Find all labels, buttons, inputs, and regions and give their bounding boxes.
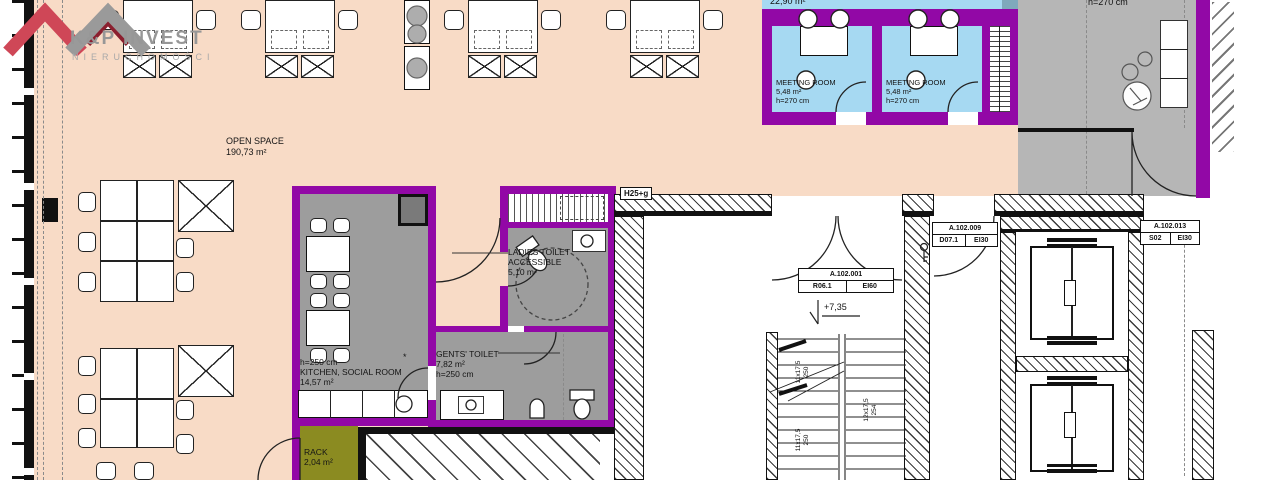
elevator-door bbox=[1047, 244, 1097, 247]
room-area: 22,90 m² bbox=[770, 0, 834, 6]
chair bbox=[96, 462, 116, 480]
chair bbox=[176, 400, 194, 420]
elevator-door bbox=[1047, 469, 1097, 473]
meeting-wall bbox=[872, 26, 882, 112]
facade-tick-marks bbox=[12, 0, 24, 480]
shaft-wall bbox=[1000, 232, 1016, 480]
core-wall bbox=[614, 216, 644, 480]
door-fire-rating: EI60 bbox=[846, 281, 894, 292]
meeting-table bbox=[910, 26, 958, 56]
chair bbox=[176, 238, 194, 258]
toilet-wall bbox=[500, 186, 616, 194]
gents-toilet-label: GENTS' TOILET 7,82 m² h=250 cm bbox=[436, 349, 499, 379]
axis-dashed-line bbox=[37, 0, 38, 480]
storage-cabinet bbox=[504, 55, 537, 78]
chair bbox=[78, 232, 96, 252]
meeting-table bbox=[800, 26, 848, 56]
room-above-area-label: 22,90 m² bbox=[770, 0, 834, 9]
cabinet-shelf bbox=[1160, 49, 1188, 50]
room-area: 14,57 m² bbox=[300, 377, 402, 387]
room-name: GENTS' TOILET bbox=[436, 349, 499, 359]
elevator-guide bbox=[1064, 280, 1076, 306]
storage-cabinet bbox=[301, 55, 334, 78]
chair bbox=[78, 192, 96, 212]
axis-dashed-line bbox=[1086, 0, 1087, 194]
axis-dashed-line bbox=[1184, 220, 1185, 476]
shelf-divider bbox=[999, 26, 1000, 112]
desk bbox=[271, 30, 297, 49]
partition-dashed-line bbox=[563, 334, 564, 420]
wall-column bbox=[42, 198, 58, 222]
chair bbox=[78, 428, 96, 448]
hall-partition-wall bbox=[1018, 128, 1134, 132]
chair bbox=[541, 10, 561, 30]
kitchen-label: h=250 cm KITCHEN, SOCIAL ROOM 14,57 m² bbox=[300, 357, 402, 387]
storage-cabinet bbox=[630, 55, 663, 78]
meeting-wall bbox=[762, 9, 1020, 26]
room-area: 190,73 m² bbox=[226, 147, 284, 158]
open-space-floor-3 bbox=[762, 125, 1018, 196]
chair bbox=[444, 10, 464, 30]
stair-wall bbox=[766, 332, 778, 480]
door-code-lobby: A.102.009 D07.1 EI30 bbox=[932, 222, 998, 247]
counter-divider bbox=[362, 390, 363, 418]
counter-divider bbox=[394, 390, 395, 418]
shaft-wall bbox=[1000, 216, 1144, 232]
ladies-toilet-label: LADIES TOILET ACCESSIBLE 5,10 m² bbox=[508, 247, 570, 277]
table-divider bbox=[100, 398, 174, 400]
room-height: h=270 cm bbox=[886, 97, 946, 106]
asterisk-mark: * bbox=[403, 352, 407, 363]
chair bbox=[99, 10, 119, 30]
room-qualifier: ACCESSIBLE bbox=[508, 257, 570, 267]
door-fire-rating: EI30 bbox=[965, 235, 998, 246]
open-space-label: OPEN SPACE 190,73 m² bbox=[226, 136, 284, 157]
table-divider bbox=[100, 220, 174, 222]
elevator-guide bbox=[1064, 412, 1076, 438]
door-code: A.102.009 bbox=[933, 223, 997, 235]
lobby-floor bbox=[930, 216, 1000, 480]
elevator-door bbox=[1047, 238, 1097, 242]
door-code-shaft: A.102.013 S02 EI30 bbox=[1140, 220, 1200, 245]
kitchen-wall bbox=[292, 186, 436, 194]
door-code: A.102.013 bbox=[1141, 221, 1199, 233]
facade-wall bbox=[24, 0, 34, 480]
chair bbox=[176, 272, 194, 292]
axis-dashed-line bbox=[62, 0, 63, 480]
elevator-door bbox=[1047, 382, 1097, 385]
chair bbox=[606, 10, 626, 30]
axis-dashed-line bbox=[43, 0, 44, 480]
storage-cabinet bbox=[265, 55, 298, 78]
locker-dashed-unit bbox=[560, 196, 604, 220]
storage-cabinet bbox=[178, 345, 234, 397]
meeting-wall bbox=[762, 112, 1020, 125]
kitchen-wall bbox=[292, 418, 436, 426]
logo-subtitle: NIERUCHOMOŚCI bbox=[72, 52, 215, 62]
gents-door-opening bbox=[508, 326, 524, 332]
door-ref: D07.1 bbox=[933, 235, 965, 246]
desk bbox=[303, 30, 329, 49]
level-value: +7,35 bbox=[824, 302, 847, 313]
room-name: KITCHEN, SOCIAL ROOM bbox=[300, 367, 402, 377]
sink bbox=[458, 396, 484, 414]
hall-cabinet bbox=[1160, 20, 1188, 108]
room-name: RACK bbox=[304, 447, 333, 457]
rack-label: RACK 2,04 m² bbox=[304, 447, 333, 467]
door-fire-rating: EI30 bbox=[1170, 233, 1200, 244]
kitchen-table bbox=[306, 236, 350, 272]
kitchen-table bbox=[306, 310, 350, 346]
void-hatch bbox=[366, 434, 600, 480]
chair bbox=[703, 10, 723, 30]
lintel-label: H25+g bbox=[620, 187, 652, 200]
cabinet-shelf bbox=[1160, 78, 1188, 79]
planter-box bbox=[404, 46, 430, 90]
meeting-door-opening bbox=[836, 112, 866, 125]
door-ref: S02 bbox=[1141, 233, 1170, 244]
chair bbox=[176, 434, 194, 454]
desk bbox=[668, 30, 694, 49]
chair bbox=[241, 10, 261, 30]
ladies-door-opening bbox=[500, 252, 508, 286]
chair bbox=[78, 394, 96, 414]
room-name: LADIES TOILET bbox=[508, 247, 570, 257]
chair bbox=[333, 274, 350, 289]
elevator-door bbox=[1047, 341, 1097, 345]
toilet-wall bbox=[508, 222, 608, 228]
table-divider bbox=[136, 180, 138, 302]
room-name: OPEN SPACE bbox=[226, 136, 284, 147]
core-wall bbox=[994, 194, 1144, 216]
kitchen-counter bbox=[298, 390, 428, 418]
room-area: 2,04 m² bbox=[304, 457, 333, 467]
chair bbox=[78, 272, 96, 292]
floor-plan-canvas: H25+g A.102.001 R06.1 EI60 A.102.009 D07… bbox=[0, 0, 1280, 480]
shaft-wall bbox=[1128, 232, 1144, 480]
meeting-room-2-label: MEETING ROOM 5,48 m² h=270 cm bbox=[886, 79, 946, 106]
lintel-text: H25+g bbox=[624, 189, 648, 198]
kitchen-door-opening bbox=[428, 366, 436, 400]
meeting-wall bbox=[982, 26, 990, 112]
elevator-door bbox=[1047, 336, 1097, 339]
chair bbox=[310, 274, 327, 289]
rack-wall bbox=[292, 426, 300, 480]
elevator-door bbox=[1047, 376, 1097, 380]
logo-title: K&P INVEST bbox=[70, 28, 204, 50]
door-ref: R06.1 bbox=[799, 281, 846, 292]
room-area: 7,82 m² bbox=[436, 359, 499, 369]
chair bbox=[310, 293, 327, 308]
washbasin-unit bbox=[572, 230, 606, 252]
shaft-box bbox=[398, 194, 428, 226]
counter-divider bbox=[330, 390, 331, 418]
room-height: h=250 cm bbox=[300, 357, 402, 367]
meeting-door-opening bbox=[948, 112, 978, 125]
hall-right-wall bbox=[1196, 0, 1210, 198]
planter-box bbox=[404, 0, 430, 44]
door-code-stair: A.102.001 R06.1 EI60 bbox=[798, 268, 894, 293]
room-height: h=250 cm bbox=[436, 369, 499, 379]
meeting-room-1-label: MEETING ROOM 5,48 m² h=270 cm bbox=[776, 79, 836, 106]
desk bbox=[506, 30, 532, 49]
chair bbox=[78, 356, 96, 376]
core-wall bbox=[1192, 330, 1214, 480]
elevator-door bbox=[1047, 464, 1097, 467]
meeting-wall bbox=[762, 9, 772, 125]
room-height: h=270 cm bbox=[776, 97, 836, 106]
chair bbox=[196, 10, 216, 30]
room-area: 5,10 m² bbox=[508, 267, 570, 277]
toilet-wall bbox=[428, 420, 616, 427]
shaft-wall bbox=[1016, 356, 1128, 372]
chair bbox=[310, 218, 327, 233]
shelf-niche bbox=[990, 26, 1010, 112]
core-wall bbox=[902, 194, 934, 216]
void-border bbox=[358, 427, 366, 480]
desk bbox=[474, 30, 500, 49]
hall-height-label: h=270 cm bbox=[1088, 0, 1152, 9]
desk bbox=[636, 30, 662, 49]
storage-cabinet bbox=[666, 55, 699, 78]
core-wall bbox=[904, 216, 930, 480]
chair bbox=[333, 218, 350, 233]
door-code: A.102.001 bbox=[799, 269, 893, 281]
storage-cabinet bbox=[178, 180, 234, 232]
level-marker-label: +7,35 bbox=[824, 302, 847, 313]
exterior-hatch-ticks bbox=[1212, 2, 1234, 152]
void-border bbox=[358, 427, 618, 434]
chair bbox=[333, 293, 350, 308]
chair bbox=[338, 10, 358, 30]
room-height: h=270 cm bbox=[1088, 0, 1152, 7]
chair bbox=[134, 462, 154, 480]
storage-cabinet bbox=[468, 55, 501, 78]
table-divider bbox=[100, 260, 174, 262]
